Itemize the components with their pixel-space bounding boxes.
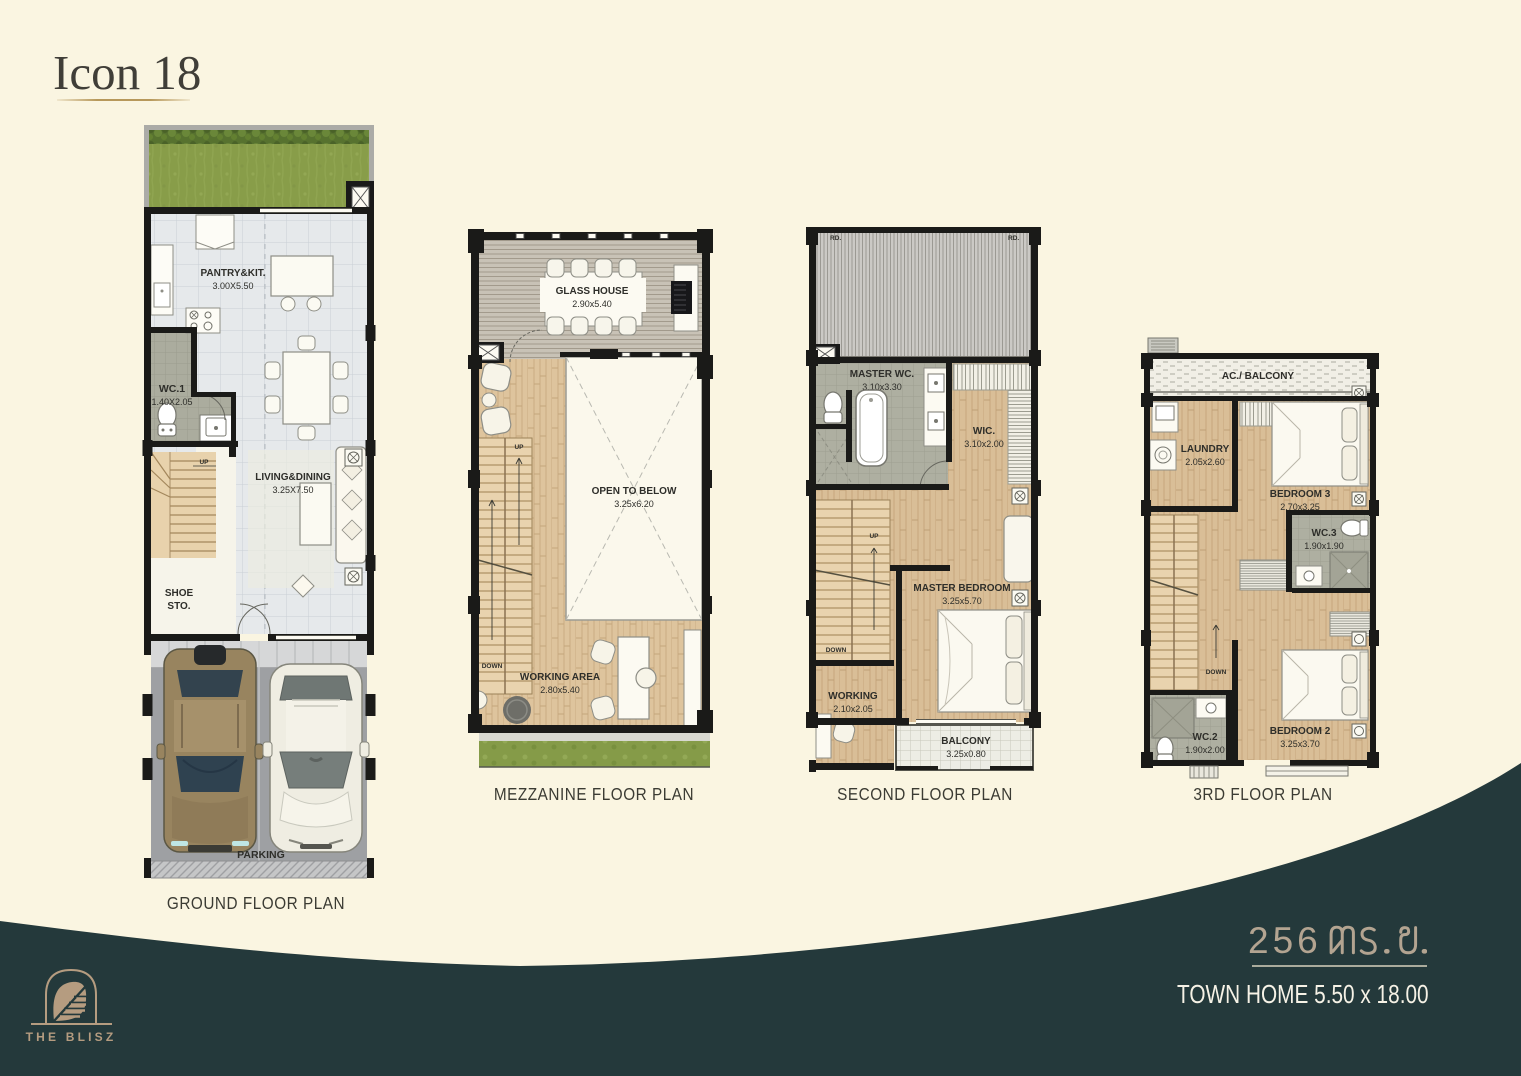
svg-text:3.25x5.70: 3.25x5.70 [942, 596, 982, 606]
svg-text:3.25X7.50: 3.25X7.50 [272, 485, 313, 495]
svg-text:DOWN: DOWN [826, 647, 847, 654]
svg-text:DOWN: DOWN [1206, 669, 1227, 676]
svg-text:2.05x2.60: 2.05x2.60 [1185, 457, 1225, 467]
svg-text:3.25x6.20: 3.25x6.20 [614, 499, 654, 509]
svg-text:UP: UP [514, 444, 524, 451]
svg-text:UP: UP [869, 533, 879, 540]
svg-text:DOWN: DOWN [482, 663, 503, 670]
svg-text:2.10x2.05: 2.10x2.05 [833, 704, 873, 714]
svg-text:2.80x5.40: 2.80x5.40 [540, 685, 580, 695]
svg-text:3.00X5.50: 3.00X5.50 [212, 281, 253, 291]
svg-text:1.40X2.05: 1.40X2.05 [151, 397, 192, 407]
svg-text:LAUNDRY: LAUNDRY [1181, 444, 1230, 455]
svg-text:THE BLISZ: THE BLISZ [26, 1030, 117, 1044]
svg-text:1.90x1.90: 1.90x1.90 [1304, 541, 1344, 551]
svg-text:MASTER BEDROOM: MASTER BEDROOM [913, 583, 1010, 594]
svg-text:RD.: RD. [830, 235, 841, 242]
svg-text:GLASS HOUSE: GLASS HOUSE [556, 286, 629, 297]
svg-text:UP: UP [199, 459, 209, 466]
svg-text:STO.: STO. [167, 601, 190, 612]
svg-text:SHOE: SHOE [165, 588, 194, 599]
svg-text:3.10x2.00: 3.10x2.00 [964, 439, 1004, 449]
svg-text:MASTER WC.: MASTER WC. [850, 369, 915, 380]
svg-text:LIVING&DINING: LIVING&DINING [255, 472, 331, 483]
svg-text:WC.1: WC.1 [159, 383, 185, 395]
svg-text:WORKING AREA: WORKING AREA [520, 672, 600, 683]
svg-text:BEDROOM 2: BEDROOM 2 [1270, 726, 1331, 737]
svg-text:RD.: RD. [1008, 235, 1019, 242]
svg-text:PANTRY&KIT.: PANTRY&KIT. [201, 268, 266, 279]
svg-text:BEDROOM 3: BEDROOM 3 [1270, 489, 1331, 500]
svg-text:WC.3: WC.3 [1312, 528, 1337, 539]
svg-text:OPEN TO BELOW: OPEN TO BELOW [592, 486, 677, 497]
svg-text:WORKING: WORKING [828, 691, 878, 702]
svg-text:AC./ BALCONY: AC./ BALCONY [1222, 371, 1295, 382]
svg-text:WIC.: WIC. [973, 426, 995, 437]
svg-text:2.90x5.40: 2.90x5.40 [572, 299, 612, 309]
